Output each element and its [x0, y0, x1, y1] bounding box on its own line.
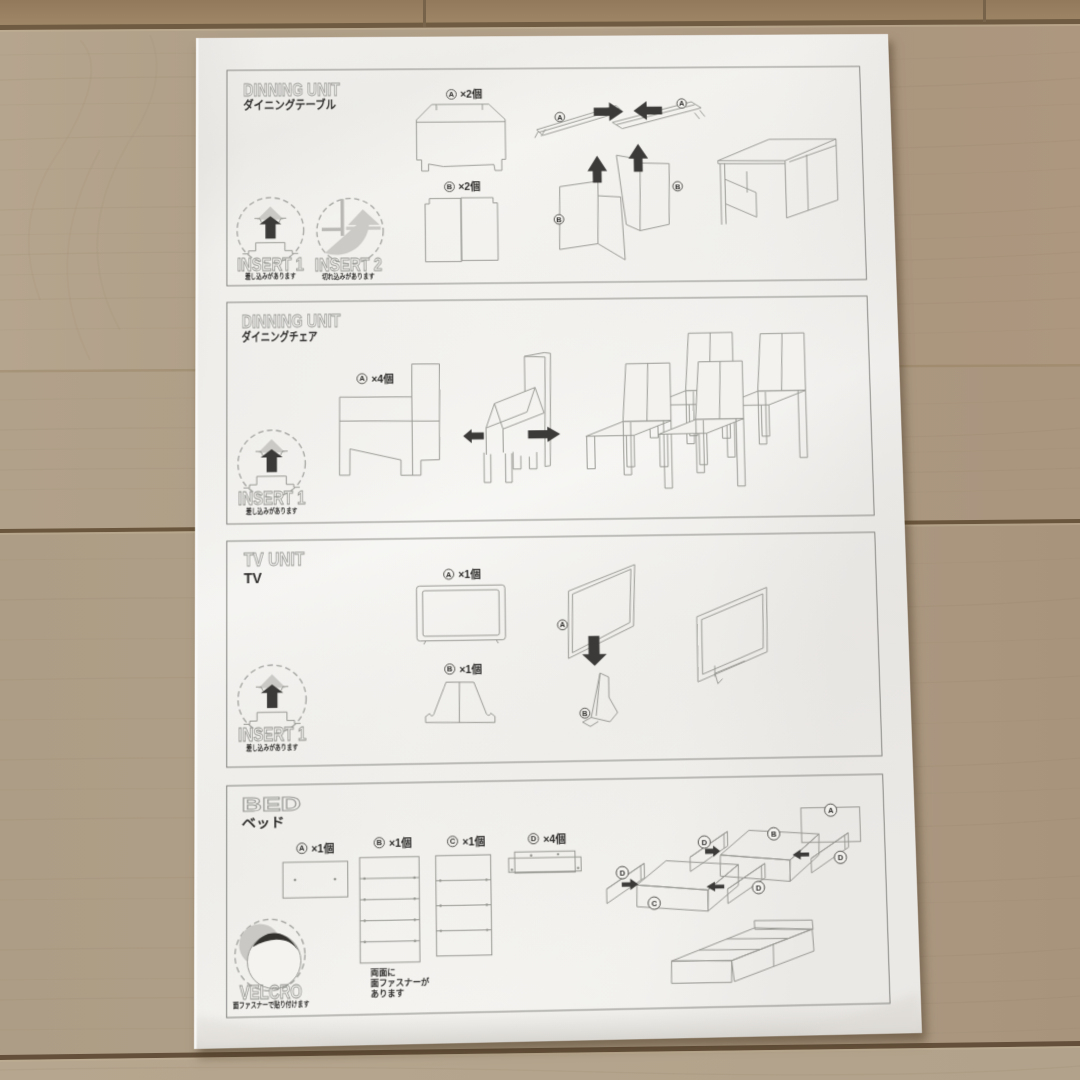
svg-text:両面に: 両面に — [370, 968, 395, 978]
svg-text:ダイニングチェア: ダイニングチェア — [242, 329, 318, 345]
svg-text:D: D — [620, 868, 626, 878]
svg-text:D: D — [531, 834, 537, 844]
svg-text:A: A — [560, 620, 566, 629]
svg-text:B: B — [447, 182, 452, 191]
svg-text:B: B — [376, 838, 382, 848]
svg-text:×4個: ×4個 — [371, 372, 393, 385]
svg-text:A: A — [449, 90, 455, 99]
svg-text:×1個: ×1個 — [458, 568, 481, 582]
svg-text:DINNING UNIT: DINNING UNIT — [243, 80, 340, 100]
svg-text:面ファスナーが: 面ファスナーが — [370, 976, 429, 988]
svg-text:×4個: ×4個 — [543, 832, 566, 846]
svg-text:C: C — [450, 837, 456, 847]
svg-text:D: D — [701, 838, 707, 848]
svg-text:×2個: ×2個 — [460, 88, 482, 101]
svg-text:×1個: ×1個 — [462, 834, 485, 848]
svg-text:A: A — [679, 99, 685, 108]
svg-text:切れ込みがあります: 切れ込みがあります — [322, 271, 375, 281]
svg-text:B: B — [447, 664, 453, 674]
svg-text:A: A — [299, 844, 305, 854]
svg-text:B: B — [582, 709, 588, 719]
svg-text:×2個: ×2個 — [458, 180, 480, 193]
svg-text:あります: あります — [371, 988, 405, 998]
svg-text:B: B — [675, 182, 680, 191]
svg-text:B: B — [556, 215, 561, 224]
svg-text:ベッド: ベッド — [242, 815, 285, 831]
svg-text:B: B — [771, 829, 777, 839]
svg-text:C: C — [651, 899, 657, 909]
svg-text:A: A — [446, 570, 452, 579]
svg-text:TV: TV — [244, 571, 262, 587]
svg-text:面ファスナーで貼り付けます: 面ファスナーで貼り付けます — [233, 999, 309, 1010]
svg-text:A: A — [557, 113, 563, 122]
svg-text:TV UNIT: TV UNIT — [244, 549, 305, 571]
svg-text:BED: BED — [242, 794, 301, 816]
svg-text:D: D — [756, 883, 762, 893]
svg-text:D: D — [838, 853, 844, 863]
svg-text:A: A — [359, 374, 365, 383]
svg-text:×1個: ×1個 — [389, 836, 412, 850]
svg-text:ダイニングテーブル: ダイニングテーブル — [243, 98, 336, 113]
svg-text:×1個: ×1個 — [459, 662, 482, 676]
svg-text:×1個: ×1個 — [311, 841, 334, 855]
